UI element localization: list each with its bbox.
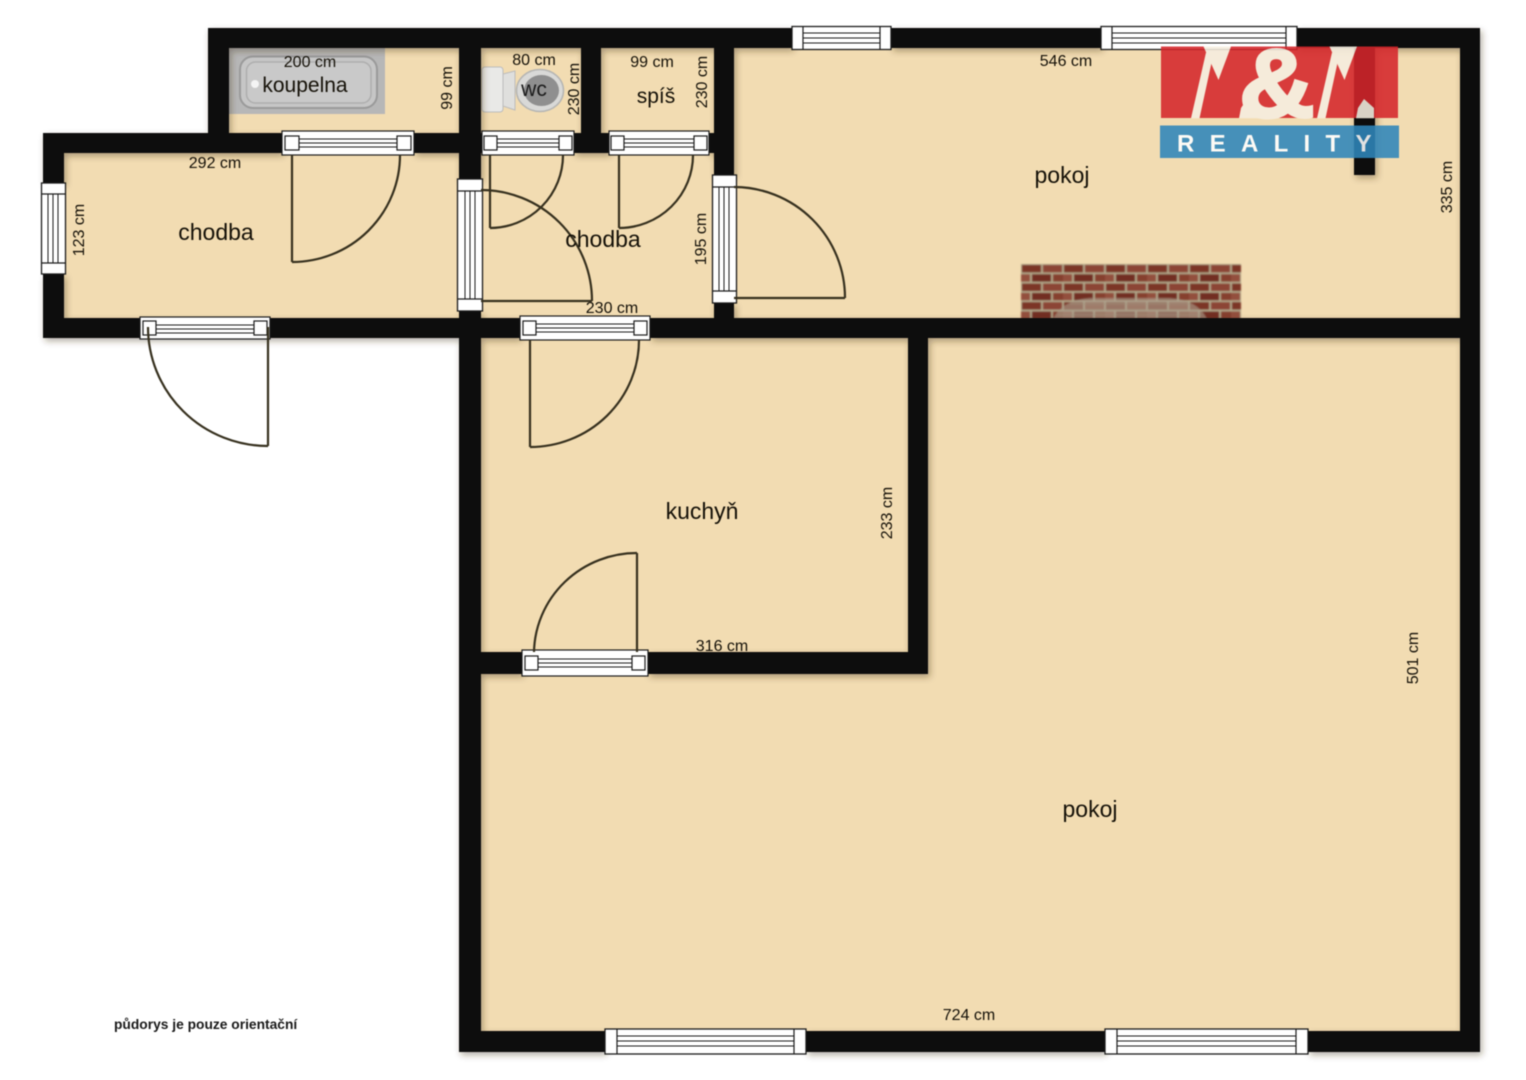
svg-text:230 cm: 230 cm	[694, 56, 711, 108]
svg-text:&: &	[1239, 31, 1315, 139]
svg-text:230 cm: 230 cm	[586, 300, 638, 317]
svg-text:koupelna: koupelna	[262, 74, 348, 97]
svg-text:123 cm: 123 cm	[71, 204, 88, 256]
svg-text:335 cm: 335 cm	[1439, 161, 1456, 213]
svg-text:316 cm: 316 cm	[696, 638, 748, 655]
svg-text:501 cm: 501 cm	[1405, 632, 1422, 684]
svg-text:724 cm: 724 cm	[943, 1007, 995, 1024]
svg-text:pokoj: pokoj	[1063, 796, 1118, 822]
svg-text:195 cm: 195 cm	[693, 213, 710, 265]
svg-text:230 cm: 230 cm	[566, 63, 583, 115]
svg-text:99 cm: 99 cm	[439, 66, 456, 110]
svg-text:chodba: chodba	[178, 219, 254, 245]
svg-text:200 cm: 200 cm	[284, 54, 336, 71]
svg-text:80 cm: 80 cm	[512, 52, 556, 69]
svg-text:pokoj: pokoj	[1035, 162, 1090, 188]
svg-text:99 cm: 99 cm	[630, 54, 674, 71]
svg-text:546 cm: 546 cm	[1040, 53, 1092, 70]
svg-text:kuchyň: kuchyň	[666, 498, 739, 524]
svg-text:spíš: spíš	[637, 85, 676, 108]
svg-text:233 cm: 233 cm	[879, 487, 896, 539]
svg-text:292 cm: 292 cm	[189, 155, 241, 172]
svg-text:REALITY: REALITY	[1177, 131, 1387, 158]
svg-text:wc: wc	[520, 78, 547, 101]
svg-text:chodba: chodba	[565, 226, 641, 252]
svg-text:půdorys je pouze orientační: půdorys je pouze orientační	[114, 1017, 298, 1032]
